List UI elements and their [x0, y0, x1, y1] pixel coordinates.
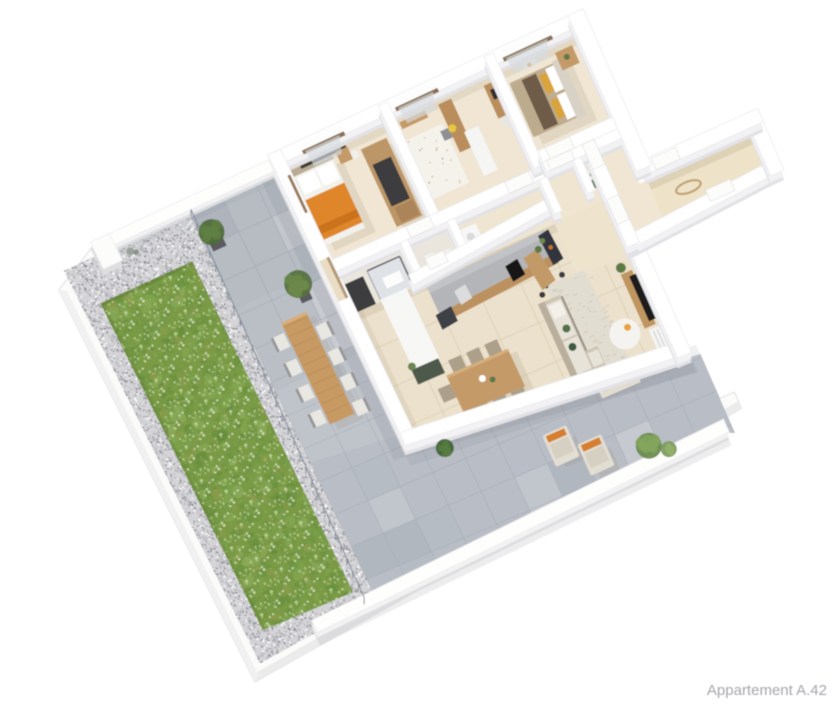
svg-text:Appartement A.42: Appartement A.42	[707, 682, 827, 699]
